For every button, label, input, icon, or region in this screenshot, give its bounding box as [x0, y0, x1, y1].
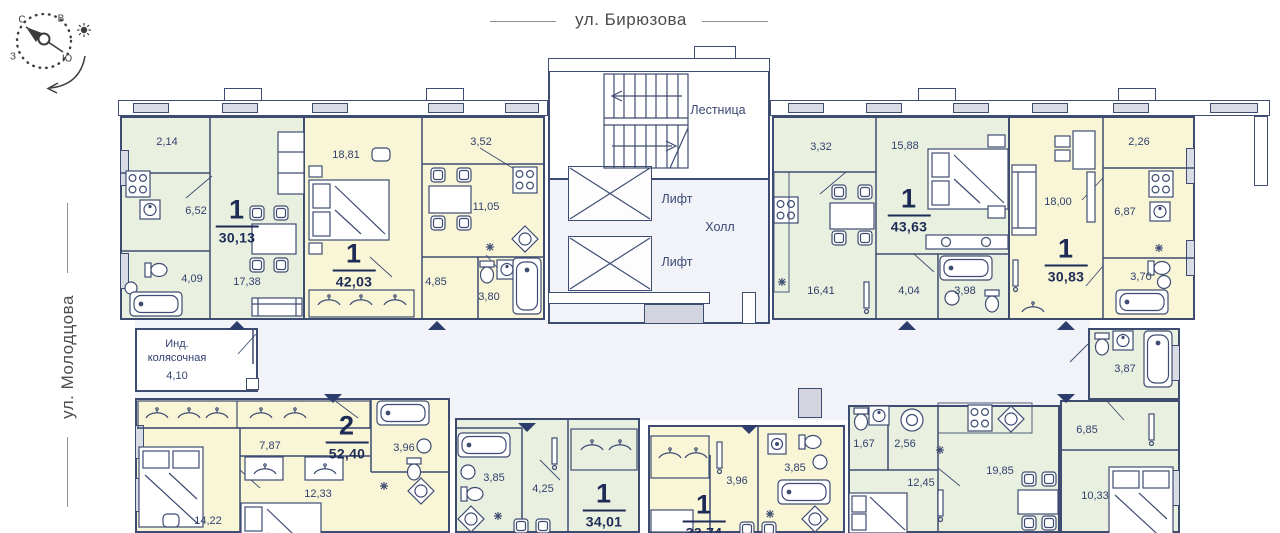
apartment-d-tag: 1 30,83 — [1045, 236, 1088, 285]
wall-bump — [1118, 88, 1156, 101]
window — [1032, 103, 1068, 113]
room-area-label: 12,45 — [907, 477, 935, 489]
room-area-label: 7,87 — [259, 440, 280, 452]
compass-icon — [0, 0, 100, 100]
elevator-1 — [568, 166, 652, 221]
apartment-c-tag: 1 43,63 — [888, 186, 931, 235]
room-area-label: 11,05 — [473, 201, 500, 213]
apartment-total-area: 33,74 — [683, 521, 726, 533]
room-area-label: 18,00 — [1044, 196, 1072, 208]
apartment-g-tag: 1 33,74 — [683, 492, 726, 533]
room-area-label: 2,56 — [894, 438, 915, 450]
hall-label: Холл — [705, 220, 734, 234]
room-area-label: 15,88 — [891, 140, 919, 152]
room-area-label: 3,85 — [483, 472, 504, 484]
room-area-label: 19,85 — [986, 465, 1014, 477]
room-area-label: 10,33 — [1081, 490, 1109, 502]
window — [428, 103, 464, 113]
street-dash — [490, 21, 556, 22]
room-area-label: 14,22 — [194, 515, 222, 527]
room-area-label: 6,87 — [1114, 206, 1135, 218]
apartment-a-region[interactable] — [120, 116, 305, 320]
room-area-label: 12,33 — [304, 488, 332, 500]
lift-2-label: Лифт — [662, 255, 693, 269]
window — [312, 103, 348, 113]
window — [120, 150, 129, 186]
room-area-label: 4,04 — [898, 285, 919, 297]
apartment-total-area: 34,01 — [583, 510, 626, 530]
compass-letter-north: С — [18, 15, 25, 26]
apartment-total-area: 52,40 — [326, 442, 369, 462]
window — [788, 103, 824, 113]
window — [1186, 240, 1195, 276]
window — [1113, 103, 1149, 113]
room-area-label: 2,14 — [156, 136, 177, 148]
window — [505, 103, 539, 113]
room-area-label: 4,25 — [532, 483, 553, 495]
apartment-b-tag: 1 42,03 — [333, 241, 376, 290]
room-area-label: 4,09 — [181, 273, 202, 285]
apartment-f-tag: 1 34,01 — [583, 481, 626, 530]
window — [222, 103, 258, 113]
wall-segment — [548, 292, 710, 304]
room-area-label: 16,41 — [807, 285, 835, 297]
room-area-label: 3,85 — [784, 462, 805, 474]
elevator-2 — [568, 236, 652, 291]
room-area-label: 3,96 — [393, 442, 414, 454]
wall-segment — [742, 292, 756, 324]
window — [866, 103, 902, 113]
wall-bump — [224, 88, 262, 101]
compass-letter-west: З — [10, 52, 16, 63]
room-area-label: 3,87 — [1114, 363, 1135, 375]
street-label-top: ул. Бирюзова — [575, 10, 687, 30]
exterior-wall-top-right — [770, 100, 1270, 116]
compass-letter-south: Ю — [62, 54, 72, 65]
room-area-label: 3,80 — [478, 291, 499, 303]
wall-bump — [918, 88, 956, 101]
apartment-rooms-count: 1 — [346, 241, 362, 268]
room-area-label: 3,98 — [954, 285, 975, 297]
stairs-label: Лестница — [690, 103, 745, 117]
apartment-total-area: 30,13 — [216, 226, 259, 246]
apartment-a-tag: 1 30,13 — [216, 197, 259, 246]
wall-bump — [694, 46, 736, 59]
window — [1171, 470, 1180, 506]
room-area-label: 3,32 — [810, 141, 831, 153]
room-area-label: 1,67 — [853, 438, 874, 450]
window — [1171, 345, 1180, 381]
apartment-h-region[interactable] — [848, 405, 1060, 533]
room-area-label: 3,52 — [470, 136, 491, 148]
compass-letter-east: В — [58, 14, 65, 25]
window — [135, 425, 144, 459]
apartment-e-region[interactable] — [135, 398, 450, 533]
stroller-room-label: Инд. — [165, 338, 188, 350]
lift-1-label: Лифт — [662, 192, 693, 206]
apartment-rooms-count: 1 — [229, 197, 245, 224]
exterior-wall-stair — [548, 58, 770, 72]
apartment-total-area: 43,63 — [888, 215, 931, 235]
apartment-rooms-count: 1 — [696, 492, 712, 519]
apartment-total-area: 42,03 — [333, 270, 376, 290]
stairwell — [548, 58, 770, 180]
shaft — [644, 304, 704, 324]
window — [953, 103, 989, 113]
room-area-label: 18,81 — [332, 149, 360, 161]
room-area-label: 4,10 — [166, 370, 187, 382]
shaft — [798, 388, 822, 418]
apartment-rooms-count: 1 — [1058, 236, 1074, 263]
window — [120, 253, 129, 289]
apartment-d-region[interactable] — [1008, 116, 1195, 320]
window — [133, 103, 169, 113]
wall-segment — [1254, 116, 1268, 186]
room-area-label: 3,96 — [726, 475, 747, 487]
room-area-label: 4,85 — [425, 276, 446, 288]
right-rooms-region[interactable] — [1060, 400, 1180, 533]
apartment-rooms-count: 1 — [901, 186, 917, 213]
window — [1186, 148, 1195, 184]
apartment-rooms-count: 2 — [339, 413, 355, 440]
room-area-label: 6,85 — [1076, 424, 1097, 436]
window — [135, 478, 144, 512]
street-dash — [67, 437, 68, 507]
room-area-label: 2,26 — [1128, 136, 1149, 148]
door-threshold — [246, 378, 259, 390]
floor-plan: ул. Бирюзова ул. Молодцова С В З Ю — [0, 0, 1280, 533]
street-dash — [702, 21, 768, 22]
street-dash — [67, 203, 68, 273]
room-area-label: 3,70 — [1130, 271, 1151, 283]
street-label-left: ул. Молодцова — [58, 295, 78, 419]
apartment-total-area: 30,83 — [1045, 265, 1088, 285]
apartment-rooms-count: 1 — [596, 481, 612, 508]
room-area-label: 17,38 — [233, 276, 261, 288]
room-area-label: 6,52 — [185, 205, 206, 217]
stroller-room-label: колясочная — [148, 352, 207, 364]
window — [1210, 103, 1258, 113]
wall-bump — [426, 88, 464, 101]
apartment-e-tag: 2 52,40 — [326, 413, 369, 462]
